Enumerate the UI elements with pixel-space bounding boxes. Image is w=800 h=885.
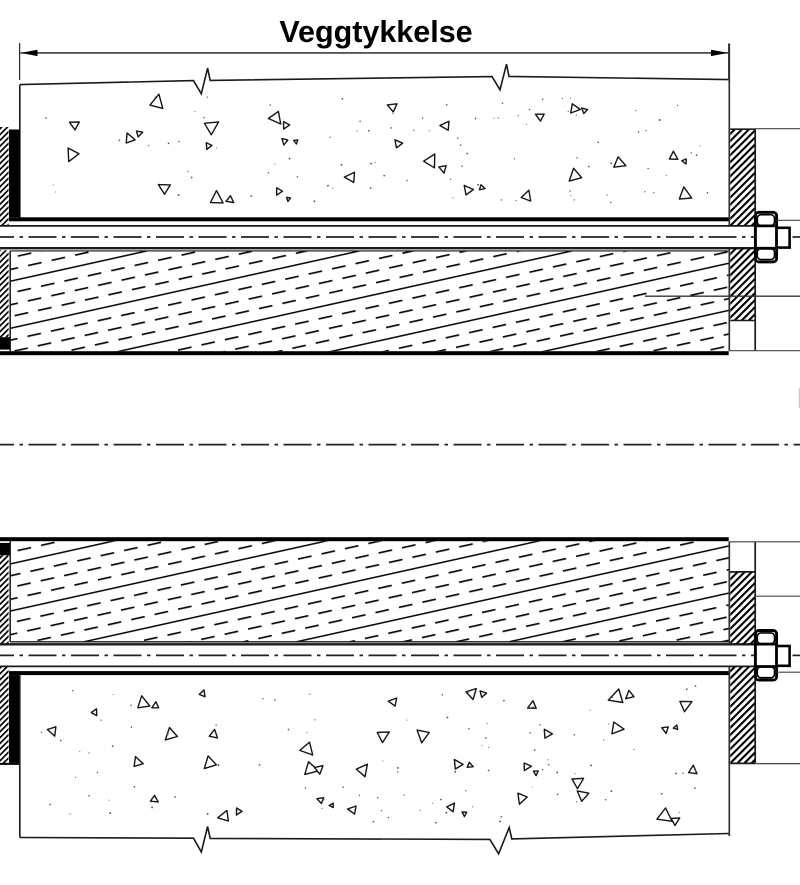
svg-text:Veggtykkelse: Veggtykkelse bbox=[279, 15, 472, 49]
